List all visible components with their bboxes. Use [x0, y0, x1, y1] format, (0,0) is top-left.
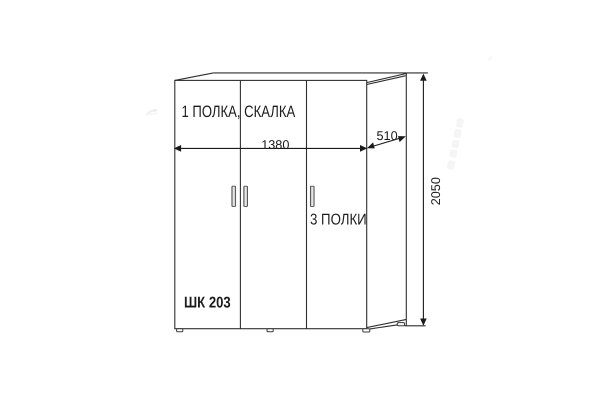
- svg-text:1 ПОЛКА, СКАЛКА: 1 ПОЛКА, СКАЛКА: [182, 103, 296, 121]
- svg-text:3 ПОЛКИ: 3 ПОЛКИ: [310, 212, 367, 229]
- svg-text:1380: 1380: [261, 138, 289, 152]
- svg-text:510: 510: [377, 129, 398, 143]
- svg-text:ШК 203: ШК 203: [184, 295, 231, 312]
- svg-text:2050: 2050: [429, 177, 443, 205]
